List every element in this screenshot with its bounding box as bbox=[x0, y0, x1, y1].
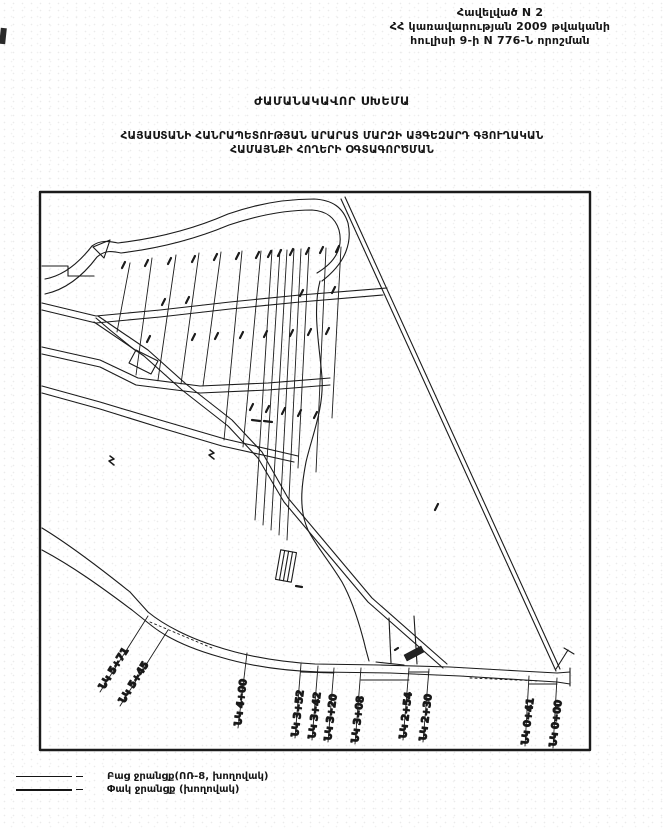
picket-labels: ՆԿ 5+71 ՆԿ 5+45 ՆԿ 4+00 ՆԿ 3+52 ՆԿ 3+42 … bbox=[97, 646, 564, 748]
picket-label: ՆԿ 3+20 bbox=[323, 693, 340, 741]
picket-label: ՆԿ 4+00 bbox=[233, 678, 250, 726]
building-hatched bbox=[276, 550, 297, 582]
cross-road-upper bbox=[42, 288, 387, 323]
legend-item-open-canal: Բաց ջրանցք(ՈՌ-8, խողովակ) bbox=[16, 770, 268, 783]
picket-label: ՆԿ 3+42 bbox=[307, 691, 324, 739]
picket-label: ՆԿ 2+54 bbox=[398, 691, 415, 739]
east-boundary-line bbox=[302, 281, 369, 661]
picket-label: ՆԿ 0+41 bbox=[520, 697, 537, 745]
right-diagonal-road bbox=[341, 197, 574, 671]
map-frame bbox=[40, 192, 590, 750]
legend-item-closed-canal: Փակ ջրանցք (խողովակ) bbox=[16, 783, 268, 796]
picket-label: ՆԿ 2+30 bbox=[418, 693, 435, 741]
picket-label: ՆԿ 0+00 bbox=[548, 699, 565, 747]
open-canal-line-sample bbox=[16, 776, 72, 777]
legend-label-closed-canal: Փակ ջրանցք (խողովակ) bbox=[107, 784, 239, 795]
pole-symbols bbox=[109, 450, 214, 465]
closed-canal-line-dash bbox=[76, 789, 83, 790]
map-figure: ՆԿ 5+71 ՆԿ 5+45 ՆԿ 4+00 ՆԿ 3+52 ՆԿ 3+42 … bbox=[0, 0, 664, 828]
closed-canal-line-sample bbox=[16, 789, 72, 791]
scanned-document-page: { "page": { "header": { "line1": "Հավելվ… bbox=[0, 0, 664, 828]
open-canal-line-dash bbox=[76, 776, 83, 777]
field-drain-lines bbox=[117, 247, 341, 540]
picket-label: ՆԿ 5+45 bbox=[117, 660, 151, 706]
central-diagonal-road bbox=[94, 316, 447, 668]
road-junction-details bbox=[96, 318, 158, 374]
land-use-map: ՆԿ 5+71 ՆԿ 5+45 ՆԿ 4+00 ՆԿ 3+52 ՆԿ 3+42 … bbox=[0, 0, 664, 828]
bridge-bar bbox=[404, 646, 424, 661]
picket-label: ՆԿ 3+08 bbox=[350, 695, 367, 743]
legend-label-open-canal: Բաց ջրանցք(ՈՌ-8, խողովակ) bbox=[107, 771, 268, 782]
picket-label: ՆԿ 3+52 bbox=[290, 689, 307, 737]
map-legend: Բաց ջրանցք(ՈՌ-8, խողովակ) Փակ ջրանցք (խո… bbox=[16, 770, 268, 796]
